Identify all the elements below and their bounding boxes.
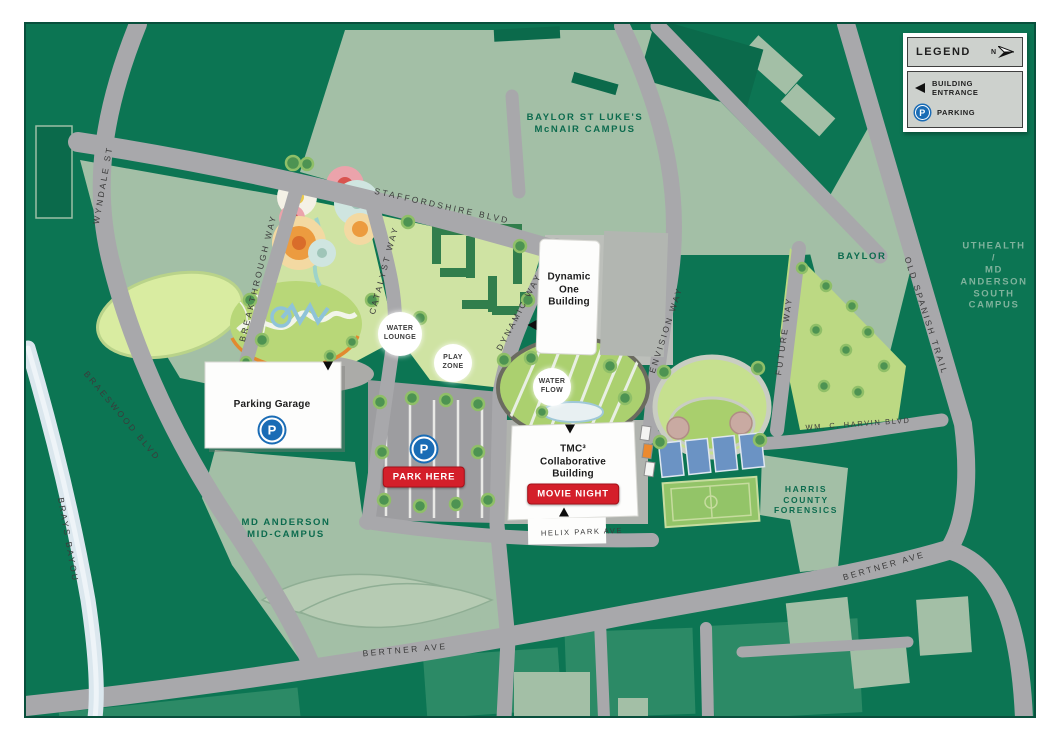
campus-label-uthealth: UTHEALTH / MD ANDERSON SOUTH CAMPUS xyxy=(960,240,1027,311)
legend-item-building-entrance: BUILDING ENTRANCE xyxy=(915,79,1015,97)
compass: N xyxy=(991,46,1014,58)
building-entrance-icon-dynamic-one xyxy=(528,320,537,330)
building-label-parking-garage: Parking Garage xyxy=(234,399,311,412)
parking-p-letter: P xyxy=(268,423,277,438)
parking-p-letter: P xyxy=(420,442,429,457)
north-arrow-icon xyxy=(998,46,1014,58)
legend-item-parking: P PARKING xyxy=(915,105,1015,120)
park-here-badge: PARK HERE xyxy=(383,467,465,488)
legend-panel: LEGEND N BUILDING ENTRANCE P PARKING xyxy=(903,33,1027,132)
building-label-dynamic-one: Dynamic One Building xyxy=(547,271,590,309)
building-entrance-icon-tmc3-south xyxy=(559,508,569,517)
campus-label-mcnair: BAYLOR ST LUKE'S McNAIR CAMPUS xyxy=(527,112,644,136)
parking-p-letter: P xyxy=(919,108,926,118)
parking-icon-garage: P xyxy=(260,418,285,443)
north-label: N xyxy=(991,49,996,56)
feature-label-play-zone: PLAY ZONE xyxy=(434,344,472,382)
building-entrance-icon-tmc3-north xyxy=(565,425,575,434)
campus-label-md-anderson-mid: MD ANDERSON MID-CAMPUS xyxy=(241,517,330,541)
building-entrance-icon-garage xyxy=(323,362,333,371)
map-canvas xyxy=(0,0,1061,740)
movie-night-badge: MOVIE NIGHT xyxy=(527,484,619,505)
legend-item-label: PARKING xyxy=(937,108,975,117)
feature-label-water-flow: WATER FLOW xyxy=(533,368,571,406)
campus-label-harris-forensics: HARRIS COUNTY FORENSICS xyxy=(774,484,838,516)
feature-label-water-lounge: WATER LOUNGE xyxy=(378,312,422,356)
legend-item-label: BUILDING ENTRANCE xyxy=(932,79,1015,97)
helix-park-event-map: STAFFORDSHIRE BLVD WYNDALE ST BRAESWOOD … xyxy=(0,0,1061,740)
parking-p-icon: P xyxy=(915,105,930,120)
building-entrance-icon xyxy=(915,83,925,93)
building-label-tmc3: TMC³ Collaborative Building xyxy=(540,443,606,481)
sport-field xyxy=(663,477,760,527)
campus-label-baylor: BAYLOR xyxy=(838,251,887,263)
parking-icon-lot: P xyxy=(412,437,437,462)
legend-title: LEGEND xyxy=(916,46,971,58)
